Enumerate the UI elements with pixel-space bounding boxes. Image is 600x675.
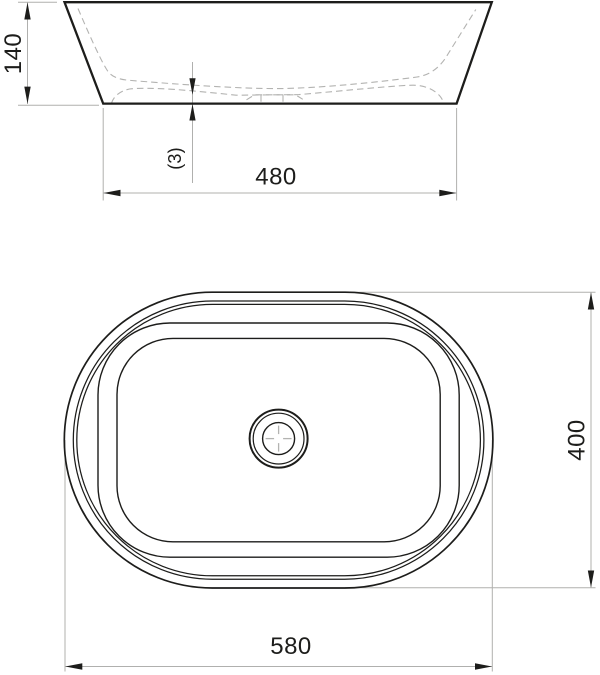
rim-ring-line-1 (73, 301, 484, 579)
arrowhead-down-icon (24, 87, 30, 104)
drain-recess-hidden-line (247, 95, 304, 102)
dim-overall-width-label: 580 (270, 633, 312, 660)
drain-center-mark (266, 426, 292, 452)
arrowhead-down-icon (588, 571, 594, 588)
technical-drawing-canvas: 140 (3) 480 (0, 0, 600, 675)
drain-ring-circle (253, 413, 304, 464)
arrowhead-up-icon (24, 3, 30, 20)
dim-overall-depth-label: 400 (564, 419, 591, 461)
arrowhead-right-icon (475, 663, 492, 669)
base-hidden-line (112, 85, 445, 103)
arrowhead-left-icon (104, 190, 121, 196)
top-view: 400 580 (64, 292, 595, 671)
dim-base-width: 480 (104, 164, 457, 197)
dim-base-width-label: 480 (255, 164, 297, 191)
side-view: 140 (3) 480 (0, 2, 492, 200)
dim-bottom-thickness: (3) (165, 78, 196, 170)
arrowhead-up-icon (588, 293, 594, 310)
dim-bottom-thickness-label: (3) (165, 147, 185, 170)
dim-overall-width: 580 (65, 633, 492, 670)
dim-overall-depth: 400 (564, 293, 595, 588)
arrowhead-left-icon (65, 663, 82, 669)
arrowhead-right-icon (439, 190, 456, 196)
dim-height-label: 140 (0, 33, 27, 75)
basin-rim-inner (117, 338, 440, 541)
inner-wall-hidden-line (78, 9, 476, 89)
basin-rim-outer (98, 323, 459, 557)
washbasin-technical-drawing: 140 (3) 480 (0, 0, 600, 675)
drain-outer-circle (250, 410, 308, 468)
arrowhead-down-icon (189, 78, 195, 95)
arrowhead-up-icon (189, 104, 195, 121)
dim-height: 140 (0, 3, 31, 104)
rim-ring-line-2 (77, 304, 481, 575)
